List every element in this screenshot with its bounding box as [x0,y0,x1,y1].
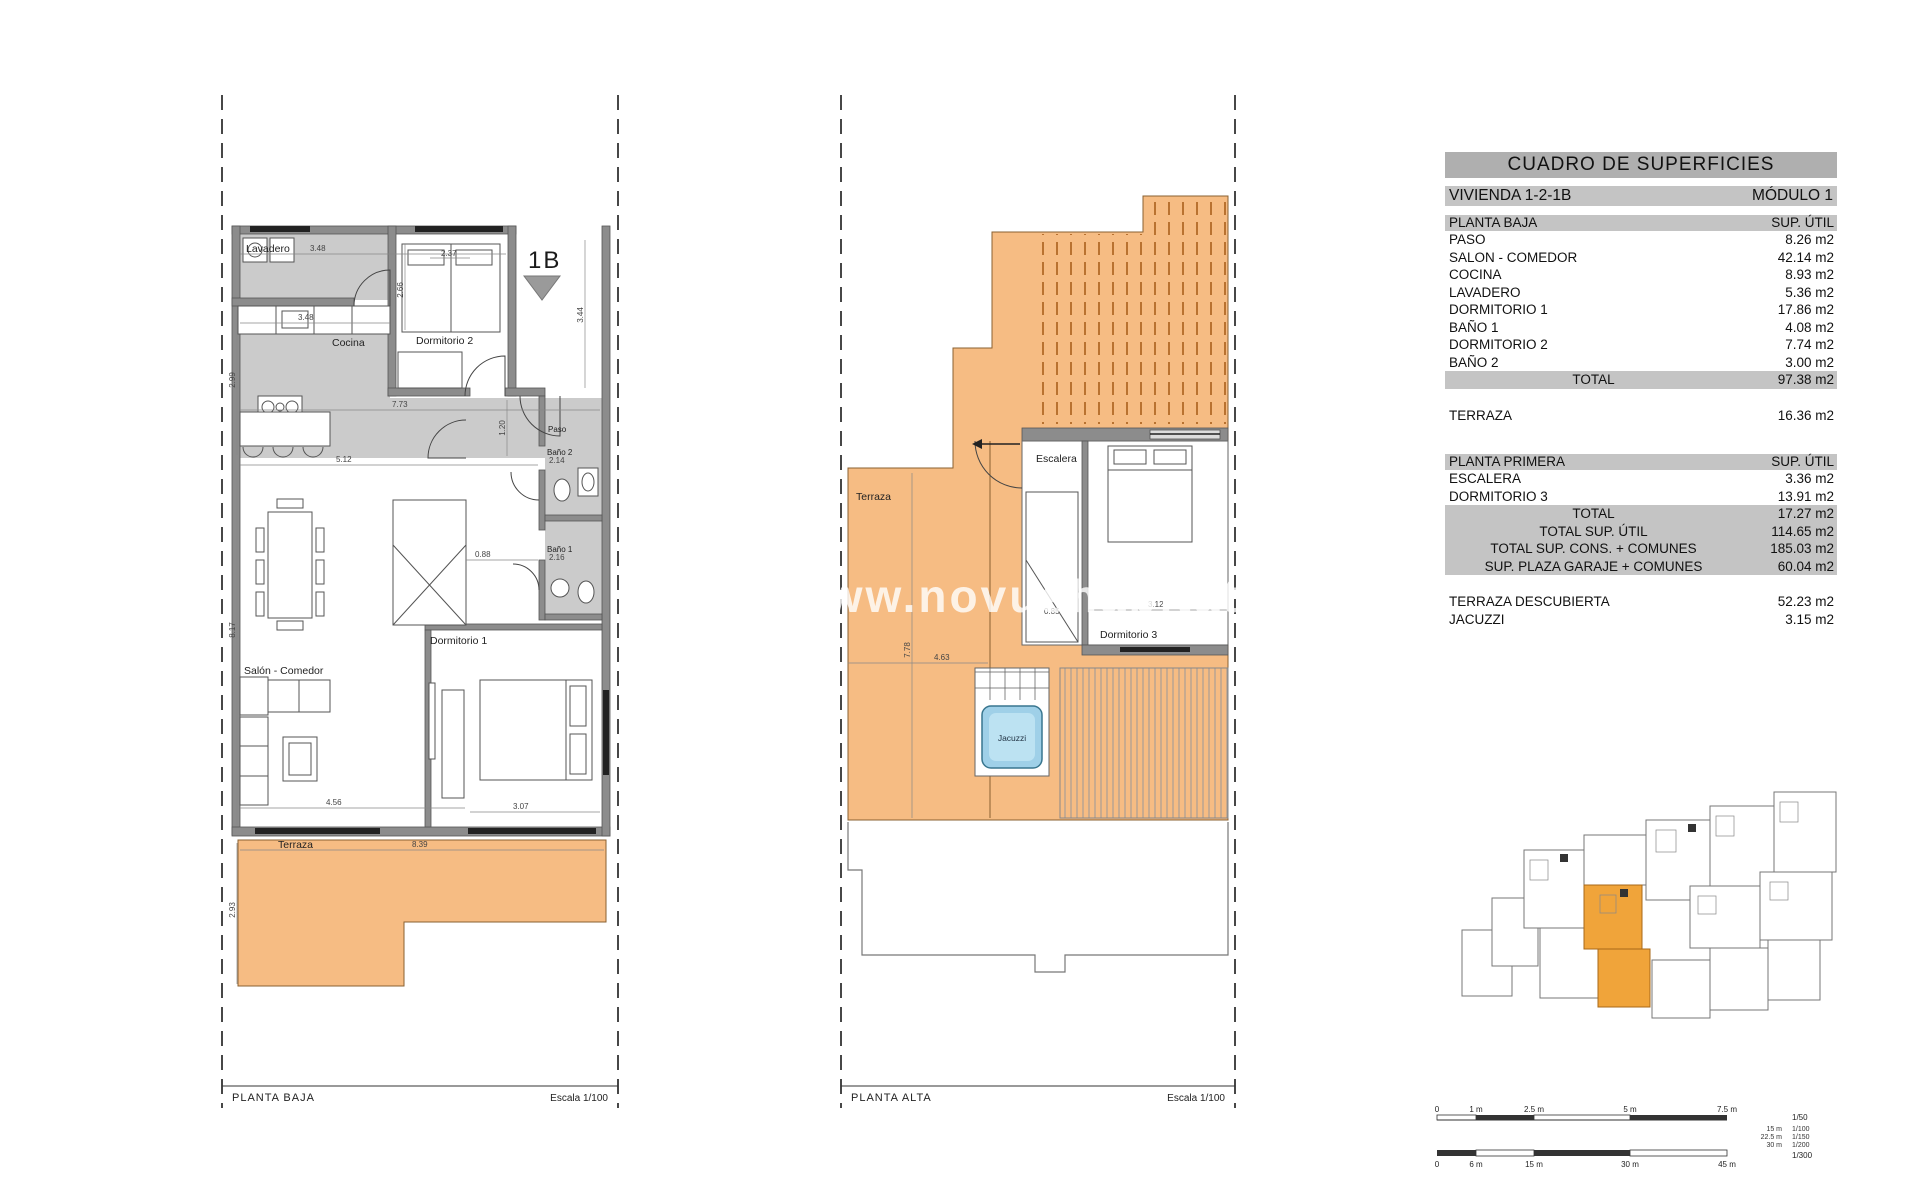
room-label-lavadero: Lavadero [246,243,290,255]
room-label-dormitorio3: Dormitorio 3 [1100,629,1157,641]
dim: 2.66 [396,282,405,298]
scale-tick: 0 [1435,1160,1440,1169]
table-total-row: SUP. PLAZA GARAJE + COMUNES60.04 m2 [1445,558,1837,576]
scale-ratio: 1/200 [1792,1142,1810,1149]
terraza-baja [238,840,606,986]
scale-ratio: 1/50 [1792,1113,1808,1122]
door-arc [511,472,539,500]
site-key-plan [1462,792,1836,1018]
scale-mid: 30 m [1766,1142,1782,1149]
surface-table: CUADRO DE SUPERFICIES VIVIENDA 1-2-1B MÓ… [1445,152,1837,628]
dim: 5.12 [336,455,352,464]
highlighted-unit [1598,949,1650,1007]
scale-tick: 7.5 m [1717,1105,1737,1114]
pergola-hatch [1032,234,1143,424]
dim: 0.88 [475,550,491,559]
pergola-hatch [1145,198,1226,424]
highlighted-unit [1584,885,1642,949]
room-label-bano2: Baño 2 [547,448,573,457]
table-row: COCINA8.93 m2 [1445,266,1837,284]
plan-title-baja: PLANTA BAJA [232,1092,315,1104]
room-label-terraza-alta: Terraza [856,491,891,503]
table-total-row: TOTAL17.27 m2 [1445,505,1837,523]
door-arc [465,356,505,396]
plan-scale-alta: Escala 1/100 [1167,1093,1225,1104]
room-label-escalera: Escalera [1036,453,1077,465]
table-row-terraza: TERRAZA16.36 m2 [1445,407,1837,425]
scale-ratio: 1/150 [1792,1134,1810,1141]
table-total-row: TOTAL97.38 m2 [1445,371,1837,389]
window [468,828,596,834]
scale-mid: 15 m [1766,1126,1782,1133]
window [415,226,503,232]
dim: 4.63 [934,653,950,662]
floor-plan-sheet: 3.48 2.37 2.66 3.48 2.99 7.73 1.20 3.44 … [0,0,1920,1200]
stair-core [1620,889,1628,897]
table-row: DORMITORIO 117.86 m2 [1445,301,1837,319]
jacuzzi-bench [975,668,1049,700]
stair-core [1560,854,1568,862]
dim: 2.14 [549,456,565,465]
table-row: TERRAZA DESCUBIERTA52.23 m2 [1445,593,1837,611]
stair-core [1688,824,1696,832]
coffee-table [283,737,317,781]
scale-ratio: 1/100 [1792,1126,1810,1133]
staircase [393,500,466,625]
unit-name: VIVIENDA 1-2-1B [1445,186,1752,206]
sofa [240,677,268,715]
scale-tick: 15 m [1525,1160,1543,1169]
scale-tick: 2.5 m [1524,1105,1544,1114]
table-unit-row: VIVIENDA 1-2-1B MÓDULO 1 [1445,186,1837,206]
toilet [554,479,570,501]
dim: 3.44 [576,307,585,323]
table-total-row: TOTAL SUP. CONS. + COMUNES185.03 m2 [1445,540,1837,558]
room-label-jacuzzi: Jacuzzi [998,733,1026,743]
scale-mid: 22.5 m [1761,1134,1783,1141]
window [255,828,380,834]
dim: 4.56 [326,798,342,807]
table-row: ESCALERA3.36 m2 [1445,470,1837,488]
dim: 7.78 [903,642,912,658]
table-title: CUADRO DE SUPERFICIES [1445,152,1837,178]
table-row: JACUZZI3.15 m2 [1445,611,1837,629]
plan-planta-baja: 3.48 2.37 2.66 3.48 2.99 7.73 1.20 3.44 … [222,95,618,1108]
dim: 2.93 [228,902,237,918]
table-row: BAÑO 14.08 m2 [1445,319,1837,337]
unit-marker-1b: 1B [528,247,561,274]
room-label-salon: Salón - Comedor [244,665,324,677]
dim: 7.73 [392,400,408,409]
toilet [578,581,594,603]
graphic-scale-bar: 0 1 m 2.5 m 5 m 7.5 m 1/50 15 m 1/100 22… [1435,1105,1813,1169]
scale-tick: 5 m [1623,1105,1637,1114]
scale-ratio: 1/300 [1792,1151,1813,1160]
sink [578,468,598,496]
sliding-door [429,683,435,759]
lower-floor-outline [848,822,1228,972]
dim: 2.16 [549,553,565,562]
window [250,226,310,232]
section-head-planta-primera: PLANTA PRIMERA SUP. ÚTIL [1445,454,1837,470]
table-row: DORMITORIO 27.74 m2 [1445,336,1837,354]
sink [551,579,569,597]
room-label-paso: Paso [548,425,567,434]
table-row: LAVADERO5.36 m2 [1445,284,1837,302]
unit-marker-triangle [524,276,560,300]
scale-tick: 45 m [1718,1160,1736,1169]
table-row: SALON - COMEDOR42.14 m2 [1445,249,1837,267]
wardrobe [398,352,462,388]
dim: 2.99 [228,372,237,388]
plan-title-alta: PLANTA ALTA [851,1092,932,1104]
door-arc [513,564,539,590]
louvre-deck [1060,668,1228,818]
table-row: BAÑO 23.00 m2 [1445,354,1837,372]
dining-table [268,512,312,618]
scale-tick: 30 m [1621,1160,1639,1169]
plan-scale-baja: Escala 1/100 [550,1093,608,1104]
dim: 2.37 [441,249,457,258]
dim: 3.07 [513,802,529,811]
table-row: PASO8.26 m2 [1445,231,1837,249]
sofa [240,717,268,805]
window [603,690,609,775]
table-total-row: TOTAL SUP. ÚTIL114.65 m2 [1445,523,1837,541]
room-label-dormitorio1: Dormitorio 1 [430,635,487,647]
room-label-dormitorio2: Dormitorio 2 [416,335,473,347]
dim: 1.20 [498,420,507,436]
room-label-terraza: Terraza [278,839,313,851]
room-label-cocina: Cocina [332,337,365,349]
scale-tick: 1 m [1469,1105,1483,1114]
kitchen-island [240,412,330,446]
scale-tick: 0 [1435,1105,1440,1114]
table-row: DORMITORIO 313.91 m2 [1445,488,1837,506]
watermark: www.novushabitat [787,570,1241,622]
shelf [442,690,464,798]
dim: 8.17 [228,622,237,638]
section-head-planta-baja: PLANTA BAJA SUP. ÚTIL [1445,215,1837,231]
dim: 3.48 [310,244,326,253]
module-name: MÓDULO 1 [1752,186,1837,206]
scale-tick: 6 m [1469,1160,1483,1169]
window [1120,647,1190,652]
dim: 3.48 [298,313,314,322]
room-label-bano1: Baño 1 [547,545,573,554]
dim: 8.39 [412,840,428,849]
